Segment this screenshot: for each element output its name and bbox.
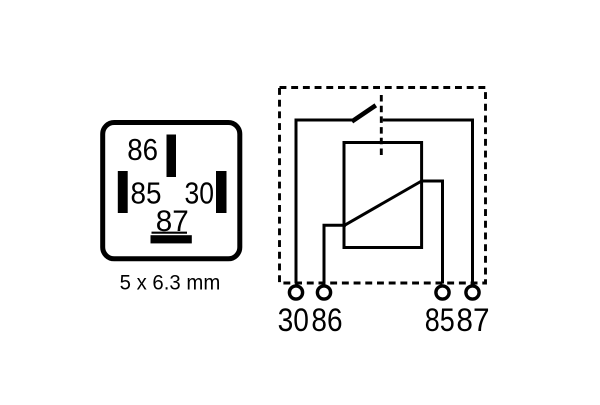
svg-text:86: 86	[311, 302, 342, 338]
svg-text:30: 30	[278, 302, 309, 338]
svg-text:5 x 6.3 mm: 5 x 6.3 mm	[120, 272, 221, 295]
svg-text:86: 86	[127, 132, 158, 167]
svg-text:30: 30	[185, 176, 215, 211]
svg-text:85: 85	[425, 302, 455, 338]
svg-text:87: 87	[456, 302, 489, 338]
